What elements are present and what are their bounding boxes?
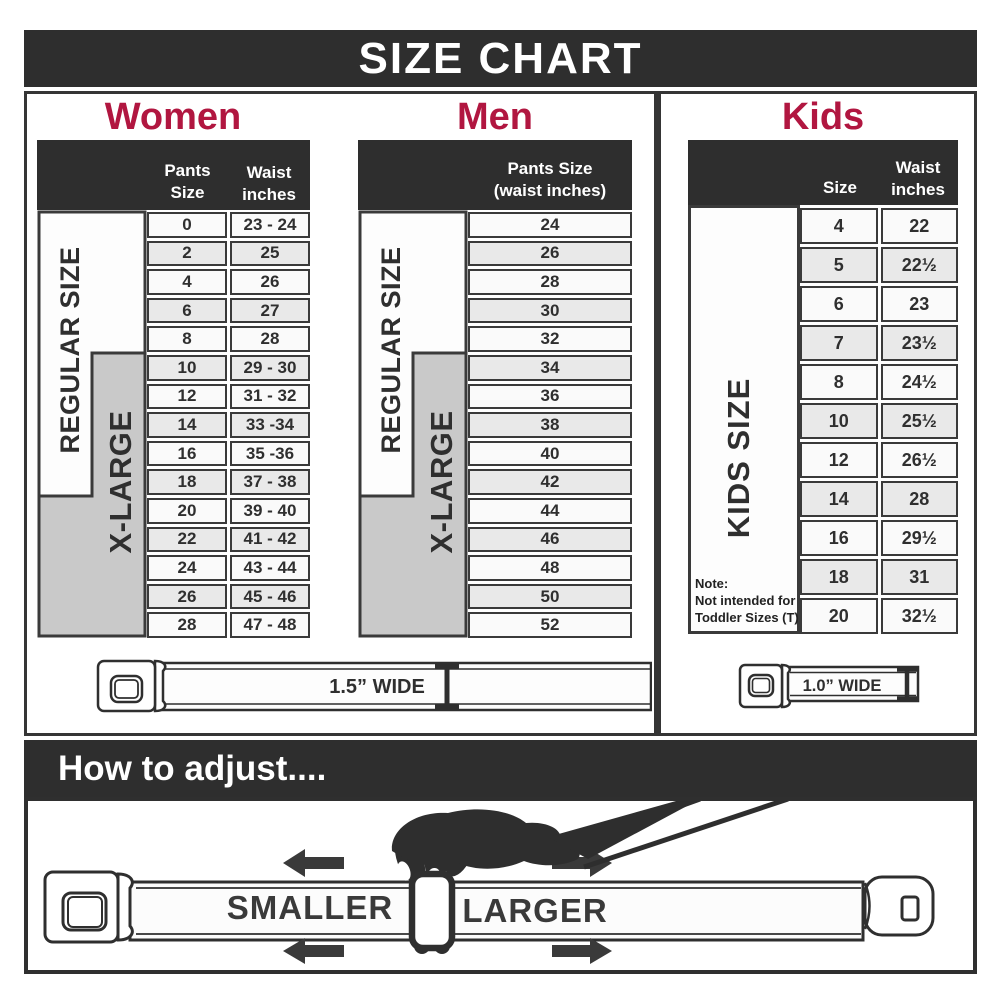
women-row-size-cell: 2 bbox=[147, 241, 227, 267]
kids-row-size-cell: 8 bbox=[800, 364, 878, 400]
women-row-waist-cell: 37 - 38 bbox=[230, 469, 310, 495]
belt-adjuster-slider bbox=[412, 874, 452, 952]
men-col-line1: Pants Size bbox=[468, 158, 632, 180]
women-row-waist-cell: 45 - 46 bbox=[230, 584, 310, 610]
women-col-waist-line2: inches bbox=[228, 184, 310, 206]
kids-row-waist-cell: 28 bbox=[881, 481, 959, 517]
women-row-size-cell: 24 bbox=[147, 555, 227, 581]
men-row-size-cell: 46 bbox=[468, 527, 632, 553]
women-row-size-cell: 10 bbox=[147, 355, 227, 381]
kids-col-waist: Waist inches bbox=[878, 157, 958, 201]
adjust-belt-buckle bbox=[45, 872, 132, 942]
women-row-size-cell: 4 bbox=[147, 269, 227, 295]
title-bar: SIZE CHART bbox=[24, 30, 977, 87]
kids-section-title: Kids bbox=[723, 95, 923, 139]
men-row-size-cell: 42 bbox=[468, 469, 632, 495]
adjust-illustration-panel: SMALLER LARGER bbox=[24, 797, 977, 974]
women-row-size-cell: 8 bbox=[147, 326, 227, 352]
kids-row-waist-cell: 26½ bbox=[881, 442, 959, 478]
women-row-size-cell: 14 bbox=[147, 412, 227, 438]
kids-row-waist-cell: 24½ bbox=[881, 364, 959, 400]
men-rows: 24 26 28 30 32 34 36 38 40 42 44 46 48 5… bbox=[468, 212, 632, 638]
men-row-size-cell: 44 bbox=[468, 498, 632, 524]
kids-row-waist-cell: 22½ bbox=[881, 247, 959, 283]
women-row-waist-cell: 29 - 30 bbox=[230, 355, 310, 381]
kids-row-size-cell: 12 bbox=[800, 442, 878, 478]
women-rows: 0 23 - 24 2 25 4 26 6 27 8 28 10 29 - 30… bbox=[147, 212, 310, 638]
men-regular-size-label: REGULAR SIZE bbox=[376, 246, 406, 453]
women-section-title: Women bbox=[73, 95, 273, 139]
kids-row-size-cell: 7 bbox=[800, 325, 878, 361]
adult-belt-buckle bbox=[98, 661, 165, 711]
women-row-size-cell: 12 bbox=[147, 384, 227, 410]
men-row-size-cell: 38 bbox=[468, 412, 632, 438]
men-row-size-cell: 28 bbox=[468, 269, 632, 295]
women-row-waist-cell: 43 - 44 bbox=[230, 555, 310, 581]
women-row-waist-cell: 39 - 40 bbox=[230, 498, 310, 524]
how-to-adjust-bar: How to adjust.... bbox=[24, 740, 977, 797]
kids-note-line1: Note: bbox=[695, 575, 799, 592]
kids-row-size-cell: 14 bbox=[800, 481, 878, 517]
kids-note-line3: Toddler Sizes (T) bbox=[695, 609, 799, 626]
women-row-waist-cell: 28 bbox=[230, 326, 310, 352]
kids-row-waist-cell: 31 bbox=[881, 559, 959, 595]
women-row-waist-cell: 23 - 24 bbox=[230, 212, 310, 238]
kids-row-waist-cell: 32½ bbox=[881, 598, 959, 634]
kids-row-size-cell: 4 bbox=[800, 208, 878, 244]
adult-belt-illustration: 1.5” WIDE bbox=[25, 648, 652, 725]
kids-note-line2: Not intended for bbox=[695, 592, 799, 609]
women-row-size-cell: 0 bbox=[147, 212, 227, 238]
adjust-belt-tongue bbox=[865, 877, 933, 935]
kids-col-waist-line1: Waist bbox=[878, 157, 958, 179]
men-row-size-cell: 50 bbox=[468, 584, 632, 610]
women-table-header: Pants Size Waist inches bbox=[37, 140, 310, 210]
women-row-waist-cell: 41 - 42 bbox=[230, 527, 310, 553]
women-row-waist-cell: 26 bbox=[230, 269, 310, 295]
men-row-size-cell: 32 bbox=[468, 326, 632, 352]
men-col-line2: (waist inches) bbox=[468, 180, 632, 202]
women-row-size-cell: 6 bbox=[147, 298, 227, 324]
men-row-size-cell: 26 bbox=[468, 241, 632, 267]
kids-row-waist-cell: 29½ bbox=[881, 520, 959, 556]
men-section-title: Men bbox=[395, 95, 595, 139]
kids-col-waist-line2: inches bbox=[878, 179, 958, 201]
smaller-label: SMALLER bbox=[227, 889, 394, 926]
men-row-size-cell: 52 bbox=[468, 612, 632, 638]
kids-table-header: Size Waist inches bbox=[688, 140, 958, 205]
kids-size-category-label-box: KIDS SIZE Note: Not intended for Toddler… bbox=[688, 205, 800, 634]
kids-row-size-cell: 20 bbox=[800, 598, 878, 634]
men-row-size-cell: 34 bbox=[468, 355, 632, 381]
men-size-category-labels: REGULAR SIZE X-LARGE bbox=[358, 210, 468, 638]
women-row-waist-cell: 35 -36 bbox=[230, 441, 310, 467]
women-size-category-labels: REGULAR SIZE X-LARGE bbox=[37, 210, 147, 638]
kids-row-size-cell: 18 bbox=[800, 559, 878, 595]
kids-belt-buckle bbox=[740, 665, 790, 707]
kids-row-waist-cell: 25½ bbox=[881, 403, 959, 439]
women-regular-size-label: REGULAR SIZE bbox=[55, 246, 85, 453]
kids-row-size-cell: 5 bbox=[800, 247, 878, 283]
larger-label: LARGER bbox=[462, 892, 607, 929]
women-row-waist-cell: 31 - 32 bbox=[230, 384, 310, 410]
men-row-size-cell: 48 bbox=[468, 555, 632, 581]
women-row-waist-cell: 47 - 48 bbox=[230, 612, 310, 638]
page-title: SIZE CHART bbox=[359, 34, 643, 83]
men-row-size-cell: 36 bbox=[468, 384, 632, 410]
kids-row-size-cell: 16 bbox=[800, 520, 878, 556]
women-col-waist: Waist inches bbox=[228, 162, 310, 206]
kids-row-waist-cell: 23½ bbox=[881, 325, 959, 361]
women-col-pants-size: Pants Size bbox=[147, 160, 228, 204]
women-row-size-cell: 18 bbox=[147, 469, 227, 495]
how-to-adjust-title: How to adjust.... bbox=[58, 749, 326, 788]
men-table-header: Pants Size (waist inches) bbox=[358, 140, 632, 210]
women-xlarge-label: X-LARGE bbox=[103, 411, 138, 554]
women-row-waist-cell: 33 -34 bbox=[230, 412, 310, 438]
women-row-waist-cell: 25 bbox=[230, 241, 310, 267]
women-row-size-cell: 22 bbox=[147, 527, 227, 553]
kids-row-waist-cell: 23 bbox=[881, 286, 959, 322]
kids-row-waist-cell: 22 bbox=[881, 208, 959, 244]
women-row-size-cell: 16 bbox=[147, 441, 227, 467]
men-col-pants-size: Pants Size (waist inches) bbox=[468, 158, 632, 202]
section-divider bbox=[654, 91, 661, 736]
women-row-size-cell: 20 bbox=[147, 498, 227, 524]
men-row-size-cell: 30 bbox=[468, 298, 632, 324]
women-row-size-cell: 26 bbox=[147, 584, 227, 610]
kids-row-size-cell: 10 bbox=[800, 403, 878, 439]
kids-size-vertical-label: KIDS SIZE bbox=[718, 308, 760, 608]
size-chart-page: SIZE CHART Women Men Kids Pants Size Wai… bbox=[0, 0, 1000, 1000]
kids-belt-width-label: 1.0” WIDE bbox=[803, 677, 882, 695]
women-row-waist-cell: 27 bbox=[230, 298, 310, 324]
kids-note: Note: Not intended for Toddler Sizes (T) bbox=[695, 575, 799, 626]
kids-belt-illustration: 1.0” WIDE bbox=[660, 648, 977, 725]
women-col-waist-line1: Waist bbox=[228, 162, 310, 184]
men-row-size-cell: 24 bbox=[468, 212, 632, 238]
adult-belt-width-label: 1.5” WIDE bbox=[329, 676, 425, 698]
men-xlarge-label: X-LARGE bbox=[424, 411, 459, 554]
men-row-size-cell: 40 bbox=[468, 441, 632, 467]
kids-rows: 4 22 5 22½ 6 23 7 23½ 8 24½ 10 25½ 12 26… bbox=[800, 208, 958, 634]
belt-adjust-illustration: SMALLER LARGER bbox=[28, 801, 973, 970]
kids-col-size: Size bbox=[800, 177, 880, 199]
women-row-size-cell: 28 bbox=[147, 612, 227, 638]
kids-row-size-cell: 6 bbox=[800, 286, 878, 322]
